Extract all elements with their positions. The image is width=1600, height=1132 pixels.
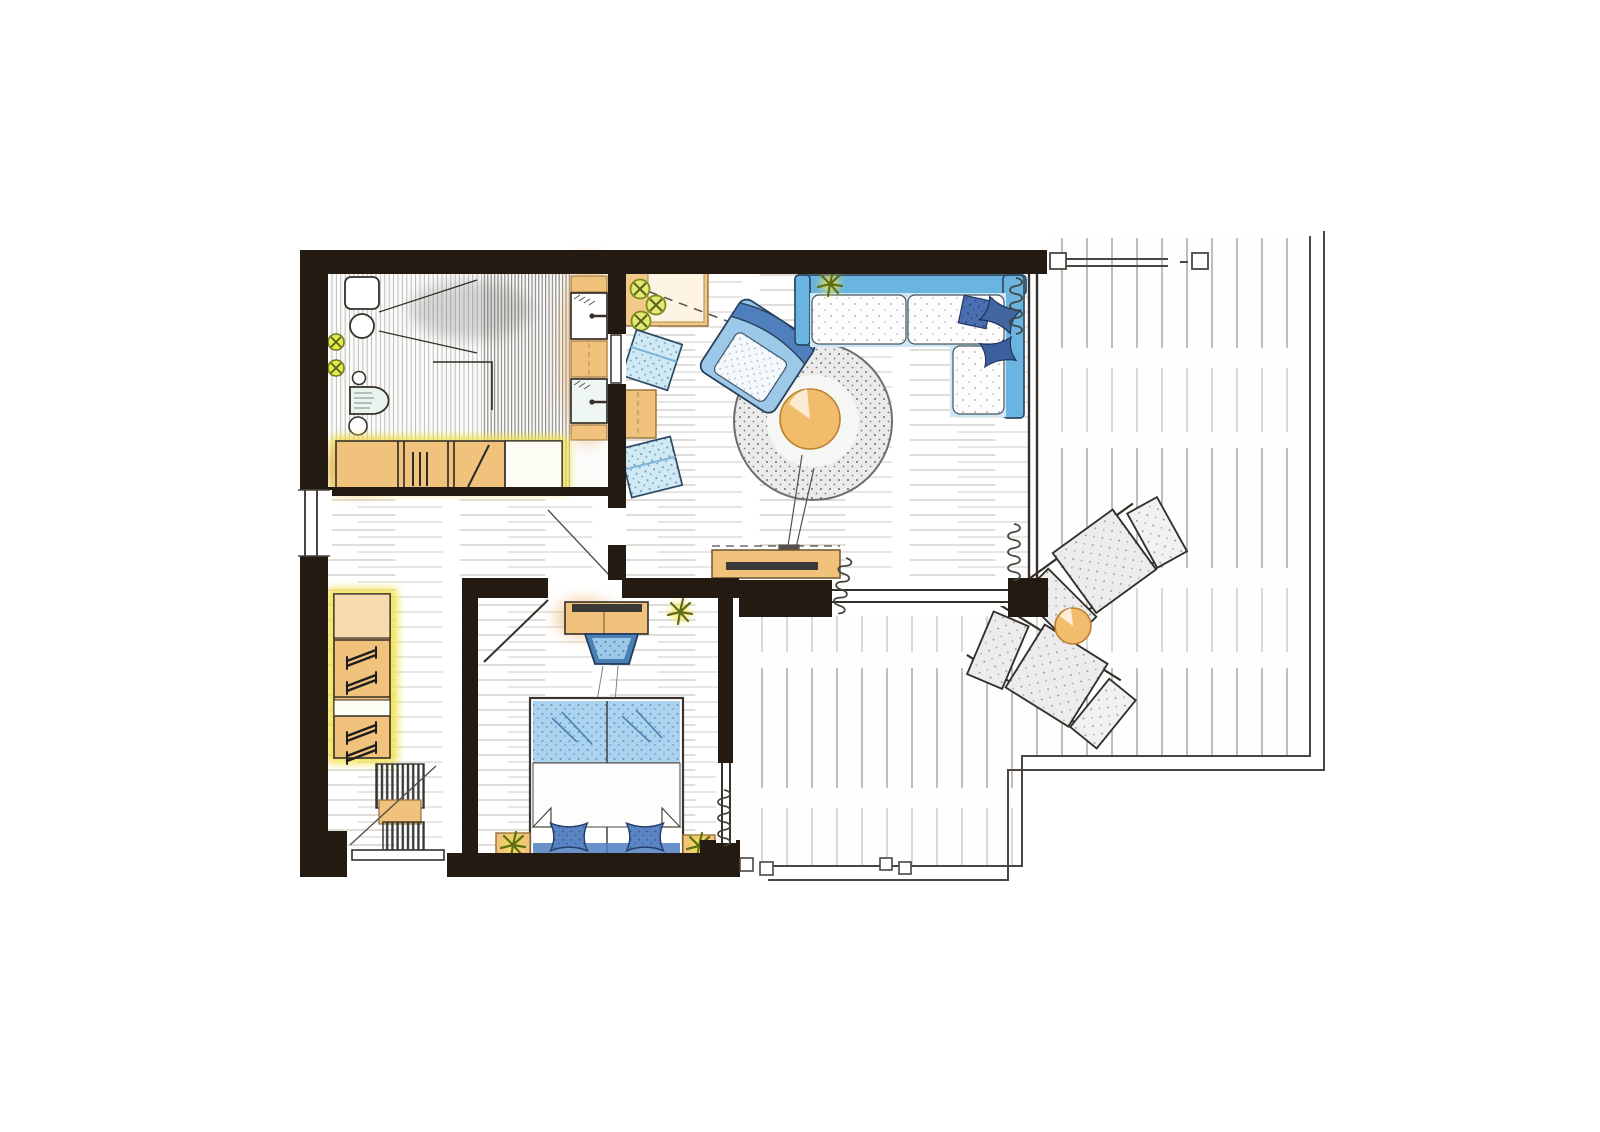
wall-left-upper [300,250,328,490]
wall-bath-east-lower [608,384,626,508]
floor-plan-canvas [0,0,1600,1132]
duvet [533,763,680,827]
wall-bedroom-west [462,598,478,855]
double-bed [530,698,683,855]
left-wall-window [296,490,332,556]
wall-left-lower [300,556,328,855]
doormat-slats [376,764,424,853]
wall-post-terrace [1008,578,1048,617]
bathroom-door [608,334,626,384]
sofa-armrest [795,275,810,345]
wall-top [300,250,1047,274]
wall-corner-se [700,840,740,877]
round-coffee-table [780,389,840,449]
bidet [353,372,366,385]
faucet-valve [328,334,344,350]
wall-corner-entrance [300,831,347,877]
wall-bedroom-north-west [462,578,548,598]
tv-screen [572,604,642,612]
hallway-floor [328,492,608,580]
round-side-table [1055,608,1091,644]
floor-plan-drawing [0,0,1600,1132]
wall-bath-south [328,487,608,496]
vanity-basin-lower [571,379,607,423]
bath-cabinet [320,436,570,494]
tv-screen [726,562,818,570]
terrace-sliding-door [832,584,1008,606]
wall-bedroom-east [718,598,733,763]
washbasin [345,277,379,338]
wardrobe [326,588,398,764]
wall-bedroom-north-east [622,578,739,598]
faucet-valve [328,360,344,376]
tv-lowboard [712,546,840,578]
vanity-column [571,276,607,440]
wall-bath-east-upper [608,274,626,334]
vanity-basin-upper [571,293,607,339]
desk-chair [585,634,638,664]
wall-bottom [447,853,739,877]
wall-bath-east-stub [608,545,626,580]
wall-living-south [739,580,832,617]
dresser-with-tv [555,598,648,638]
entrance-door [352,850,444,860]
